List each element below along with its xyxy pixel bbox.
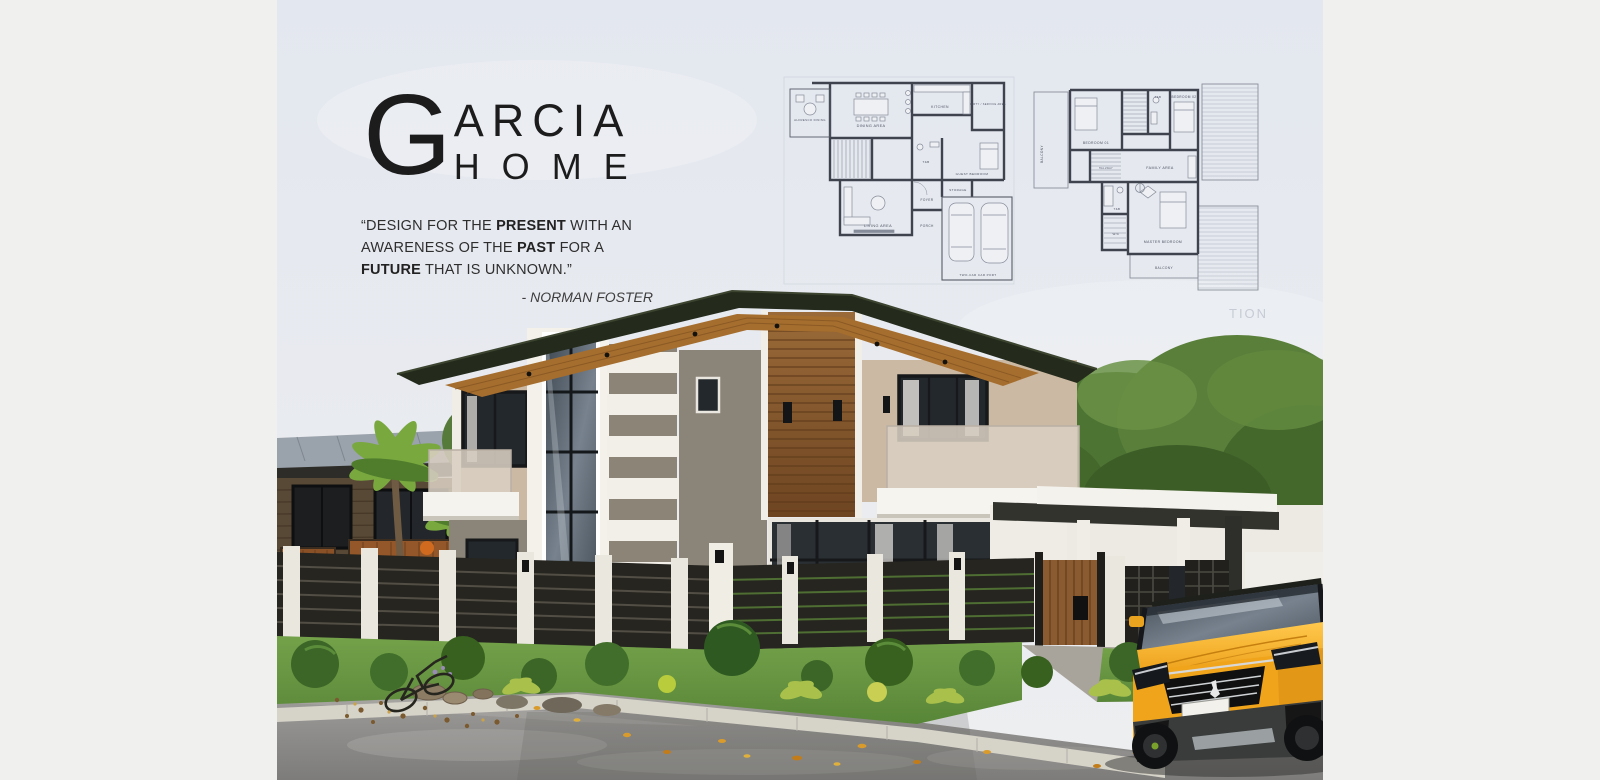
- wood-accent-tower: [767, 312, 857, 517]
- wall-sconce: [833, 400, 842, 421]
- gate-post: [1097, 552, 1105, 650]
- brand-logo: G ARCIA HOME: [363, 90, 650, 185]
- gate-mailbox: [1073, 596, 1088, 620]
- room-label-carport: TWO-CAR CAR PORT: [959, 273, 996, 277]
- presentation-board-canvas: G ARCIA HOME “DESIGN FOR THE PRESENT WIT…: [0, 0, 1600, 780]
- room-label-bedroom-02: BEDROOM 02: [1172, 95, 1197, 99]
- roof-deck-hatched: [1202, 84, 1258, 180]
- room-label-storage: STORAGE: [949, 188, 966, 192]
- brand-line1: ARCIA: [454, 98, 650, 143]
- wood-gate: [1043, 560, 1097, 645]
- room-label-family: FAMILY AREA: [1146, 166, 1174, 170]
- plan2-furniture: [1075, 97, 1196, 228]
- quote-attribution: - NORMAN FOSTER: [361, 289, 653, 305]
- poster: G ARCIA HOME “DESIGN FOR THE PRESENT WIT…: [277, 0, 1323, 780]
- room-label-porch: PORCH: [920, 224, 934, 228]
- room-label-hallway: HALLWAY: [1099, 167, 1113, 170]
- watermark-text: TION: [1229, 306, 1268, 321]
- room-label-master-bedroom: MASTER BEDROOM: [1144, 240, 1182, 244]
- left-balcony-glass: [429, 450, 511, 496]
- room-label-tb: T&B: [922, 160, 929, 164]
- small-square-window: [697, 378, 719, 412]
- car-mirror: [1129, 616, 1144, 627]
- wall-sconce: [883, 396, 890, 413]
- room-label-bedroom-01: BEDROOM 01: [1083, 141, 1109, 145]
- room-label-dining: DINING AREA: [857, 124, 886, 128]
- room-label-alfresco: ALFRESCO DINING: [794, 118, 826, 122]
- brand-line2: HOME: [454, 149, 650, 185]
- first-floor-plan: ALFRESCO DINING DINING AREA KITCHEN DIRT…: [782, 75, 1017, 287]
- left-balcony-slab: [423, 492, 519, 518]
- plan1-stairs: [834, 140, 870, 178]
- designer-quote: “DESIGN FOR THE PRESENT WITH AN AWARENES…: [361, 216, 663, 305]
- second-floor-plan: BALCONY BEDROOM 01 T&B BEDROOM 02 HALLWA…: [1030, 82, 1262, 296]
- banded-column: [607, 344, 679, 584]
- room-label-wc: W/C: [1112, 232, 1119, 236]
- quote-text: “DESIGN FOR THE PRESENT WITH AN AWARENES…: [361, 216, 663, 281]
- room-label-kitchen: KITCHEN: [931, 105, 949, 109]
- room-label-tb-top: T&B: [1155, 95, 1162, 99]
- room-label-balcony-side: BALCONY: [1040, 145, 1044, 164]
- room-label-dirty-service: DIRTY / SERVICE AREA: [970, 103, 1006, 106]
- room-label-guest-bedroom: GUEST BEDROOM: [956, 172, 989, 176]
- room-label-living: LIVING AREA: [864, 224, 892, 228]
- gate-post: [1035, 552, 1043, 650]
- room-label-foyer: FOYER: [921, 198, 934, 202]
- brand-initial: G: [363, 90, 449, 185]
- roof-deck-hatched: [1198, 206, 1258, 290]
- wall-sconce: [783, 402, 792, 423]
- right-balcony-glass: [887, 426, 1079, 490]
- room-label-balcony-bottom: BALCONY: [1155, 266, 1174, 270]
- room-label-tb-master: T&B: [1114, 207, 1121, 211]
